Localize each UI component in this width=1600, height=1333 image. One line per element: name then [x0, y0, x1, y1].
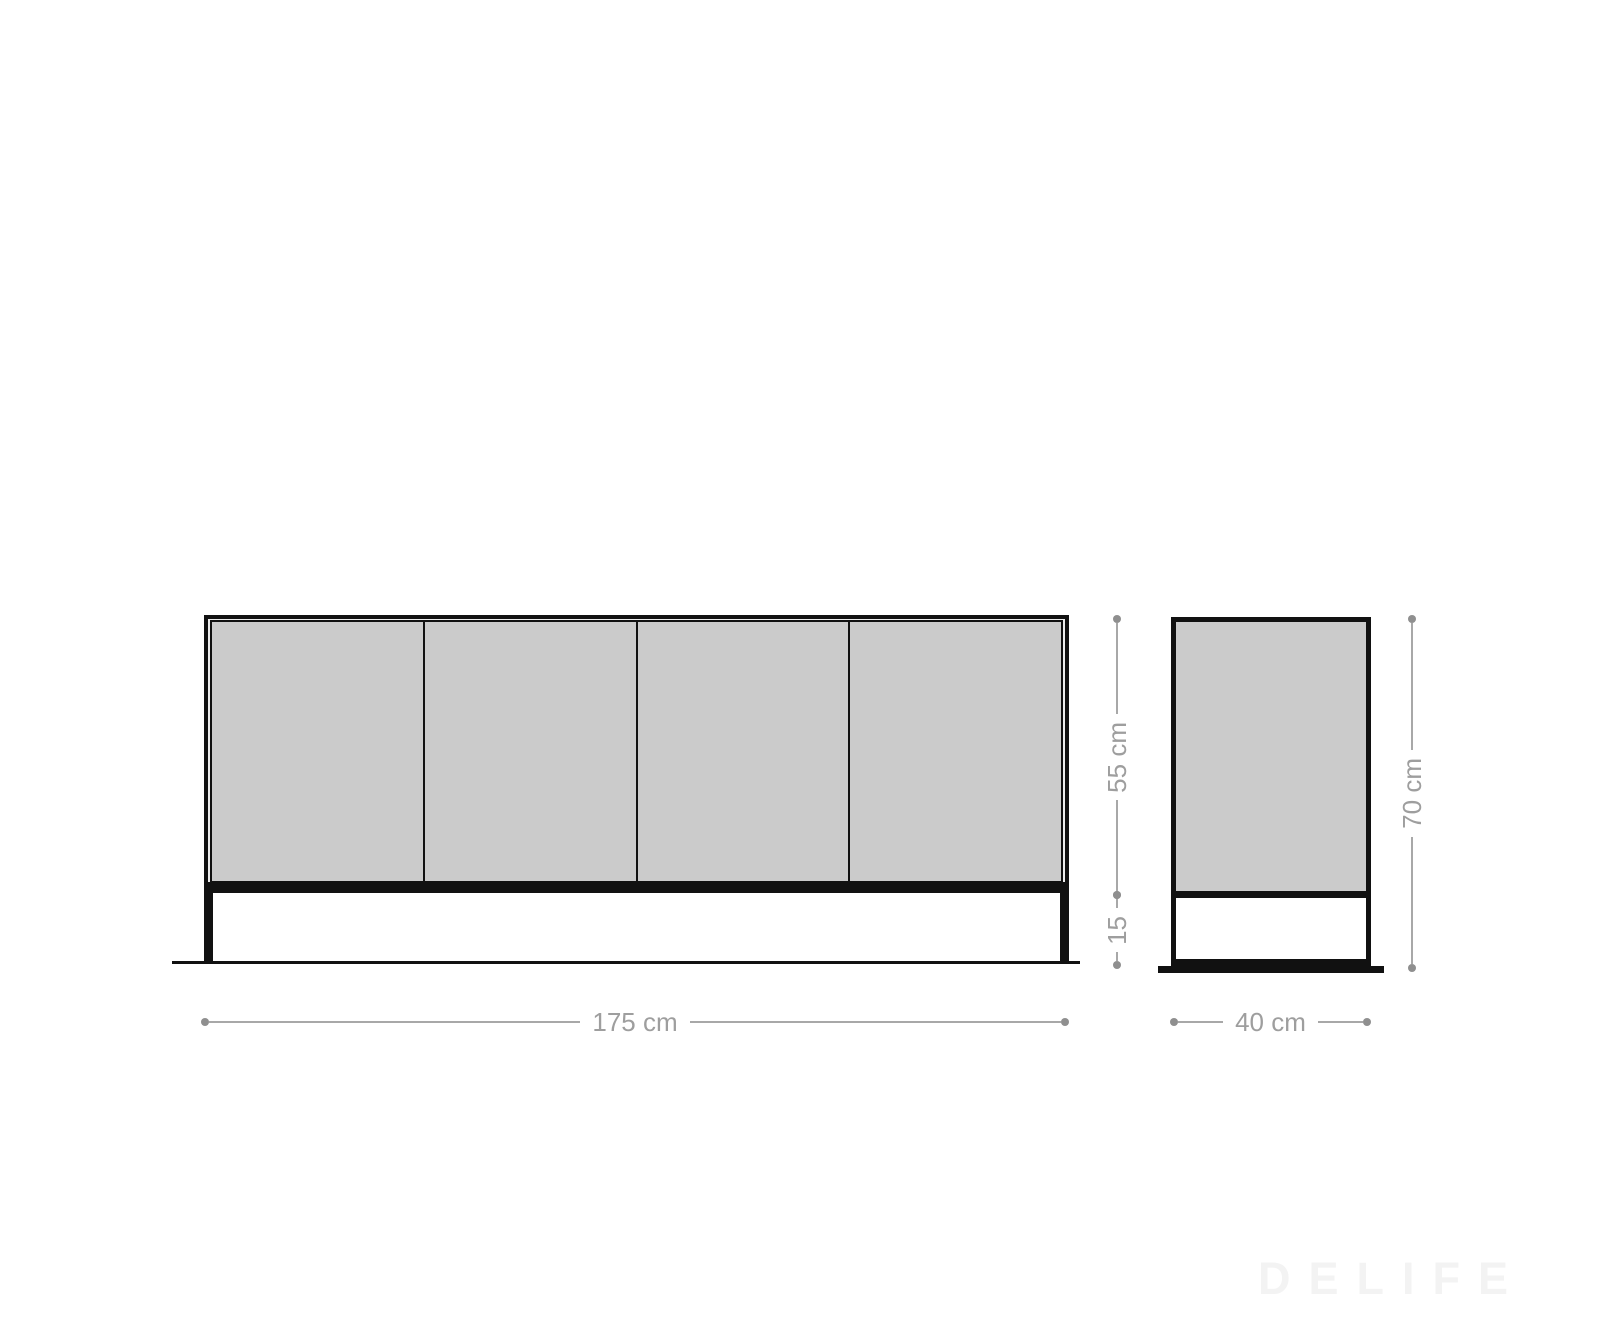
side-door-panel: [1176, 622, 1366, 898]
dimension-endpoint-dot: [1061, 1018, 1069, 1026]
base-rail: [204, 886, 1069, 893]
ground-line: [172, 961, 1080, 964]
furniture-dimension-diagram: 55 cm 15 70 cm 175 cm 40 cm DELIFE: [0, 0, 1600, 1333]
dimension-total-height: 70 cm: [1398, 615, 1426, 972]
dimension-body-height: 55 cm: [1103, 615, 1131, 899]
dimension-depth: 40 cm: [1170, 1008, 1371, 1036]
door-panel: [638, 622, 851, 881]
door-panel: [850, 622, 1061, 881]
front-door-row: [210, 620, 1063, 883]
dimension-front-width: 175 cm: [201, 1008, 1069, 1036]
door-panel: [425, 622, 638, 881]
dimension-leg-height: 15: [1103, 891, 1131, 969]
dimension-endpoint-dot: [1408, 615, 1416, 623]
total-height-label: 70 cm: [1397, 758, 1428, 829]
body-height-label: 55 cm: [1102, 722, 1133, 793]
side-foot-plate: [1158, 966, 1384, 973]
dimension-endpoint-dot: [1113, 891, 1121, 899]
dimension-endpoint-dot: [1113, 961, 1121, 969]
front-width-label: 175 cm: [592, 1007, 677, 1038]
dimension-endpoint-dot: [1408, 964, 1416, 972]
front-left-leg: [204, 893, 213, 963]
leg-height-label: 15: [1102, 916, 1133, 945]
depth-label: 40 cm: [1235, 1007, 1306, 1038]
dimension-endpoint-dot: [1363, 1018, 1371, 1026]
dimension-endpoint-dot: [1170, 1018, 1178, 1026]
door-panel: [212, 622, 425, 881]
side-body-frame: [1171, 617, 1371, 967]
brand-watermark: DELIFE: [1258, 1253, 1526, 1305]
dimension-endpoint-dot: [1113, 615, 1121, 623]
front-right-leg: [1060, 893, 1069, 963]
dimension-endpoint-dot: [201, 1018, 209, 1026]
